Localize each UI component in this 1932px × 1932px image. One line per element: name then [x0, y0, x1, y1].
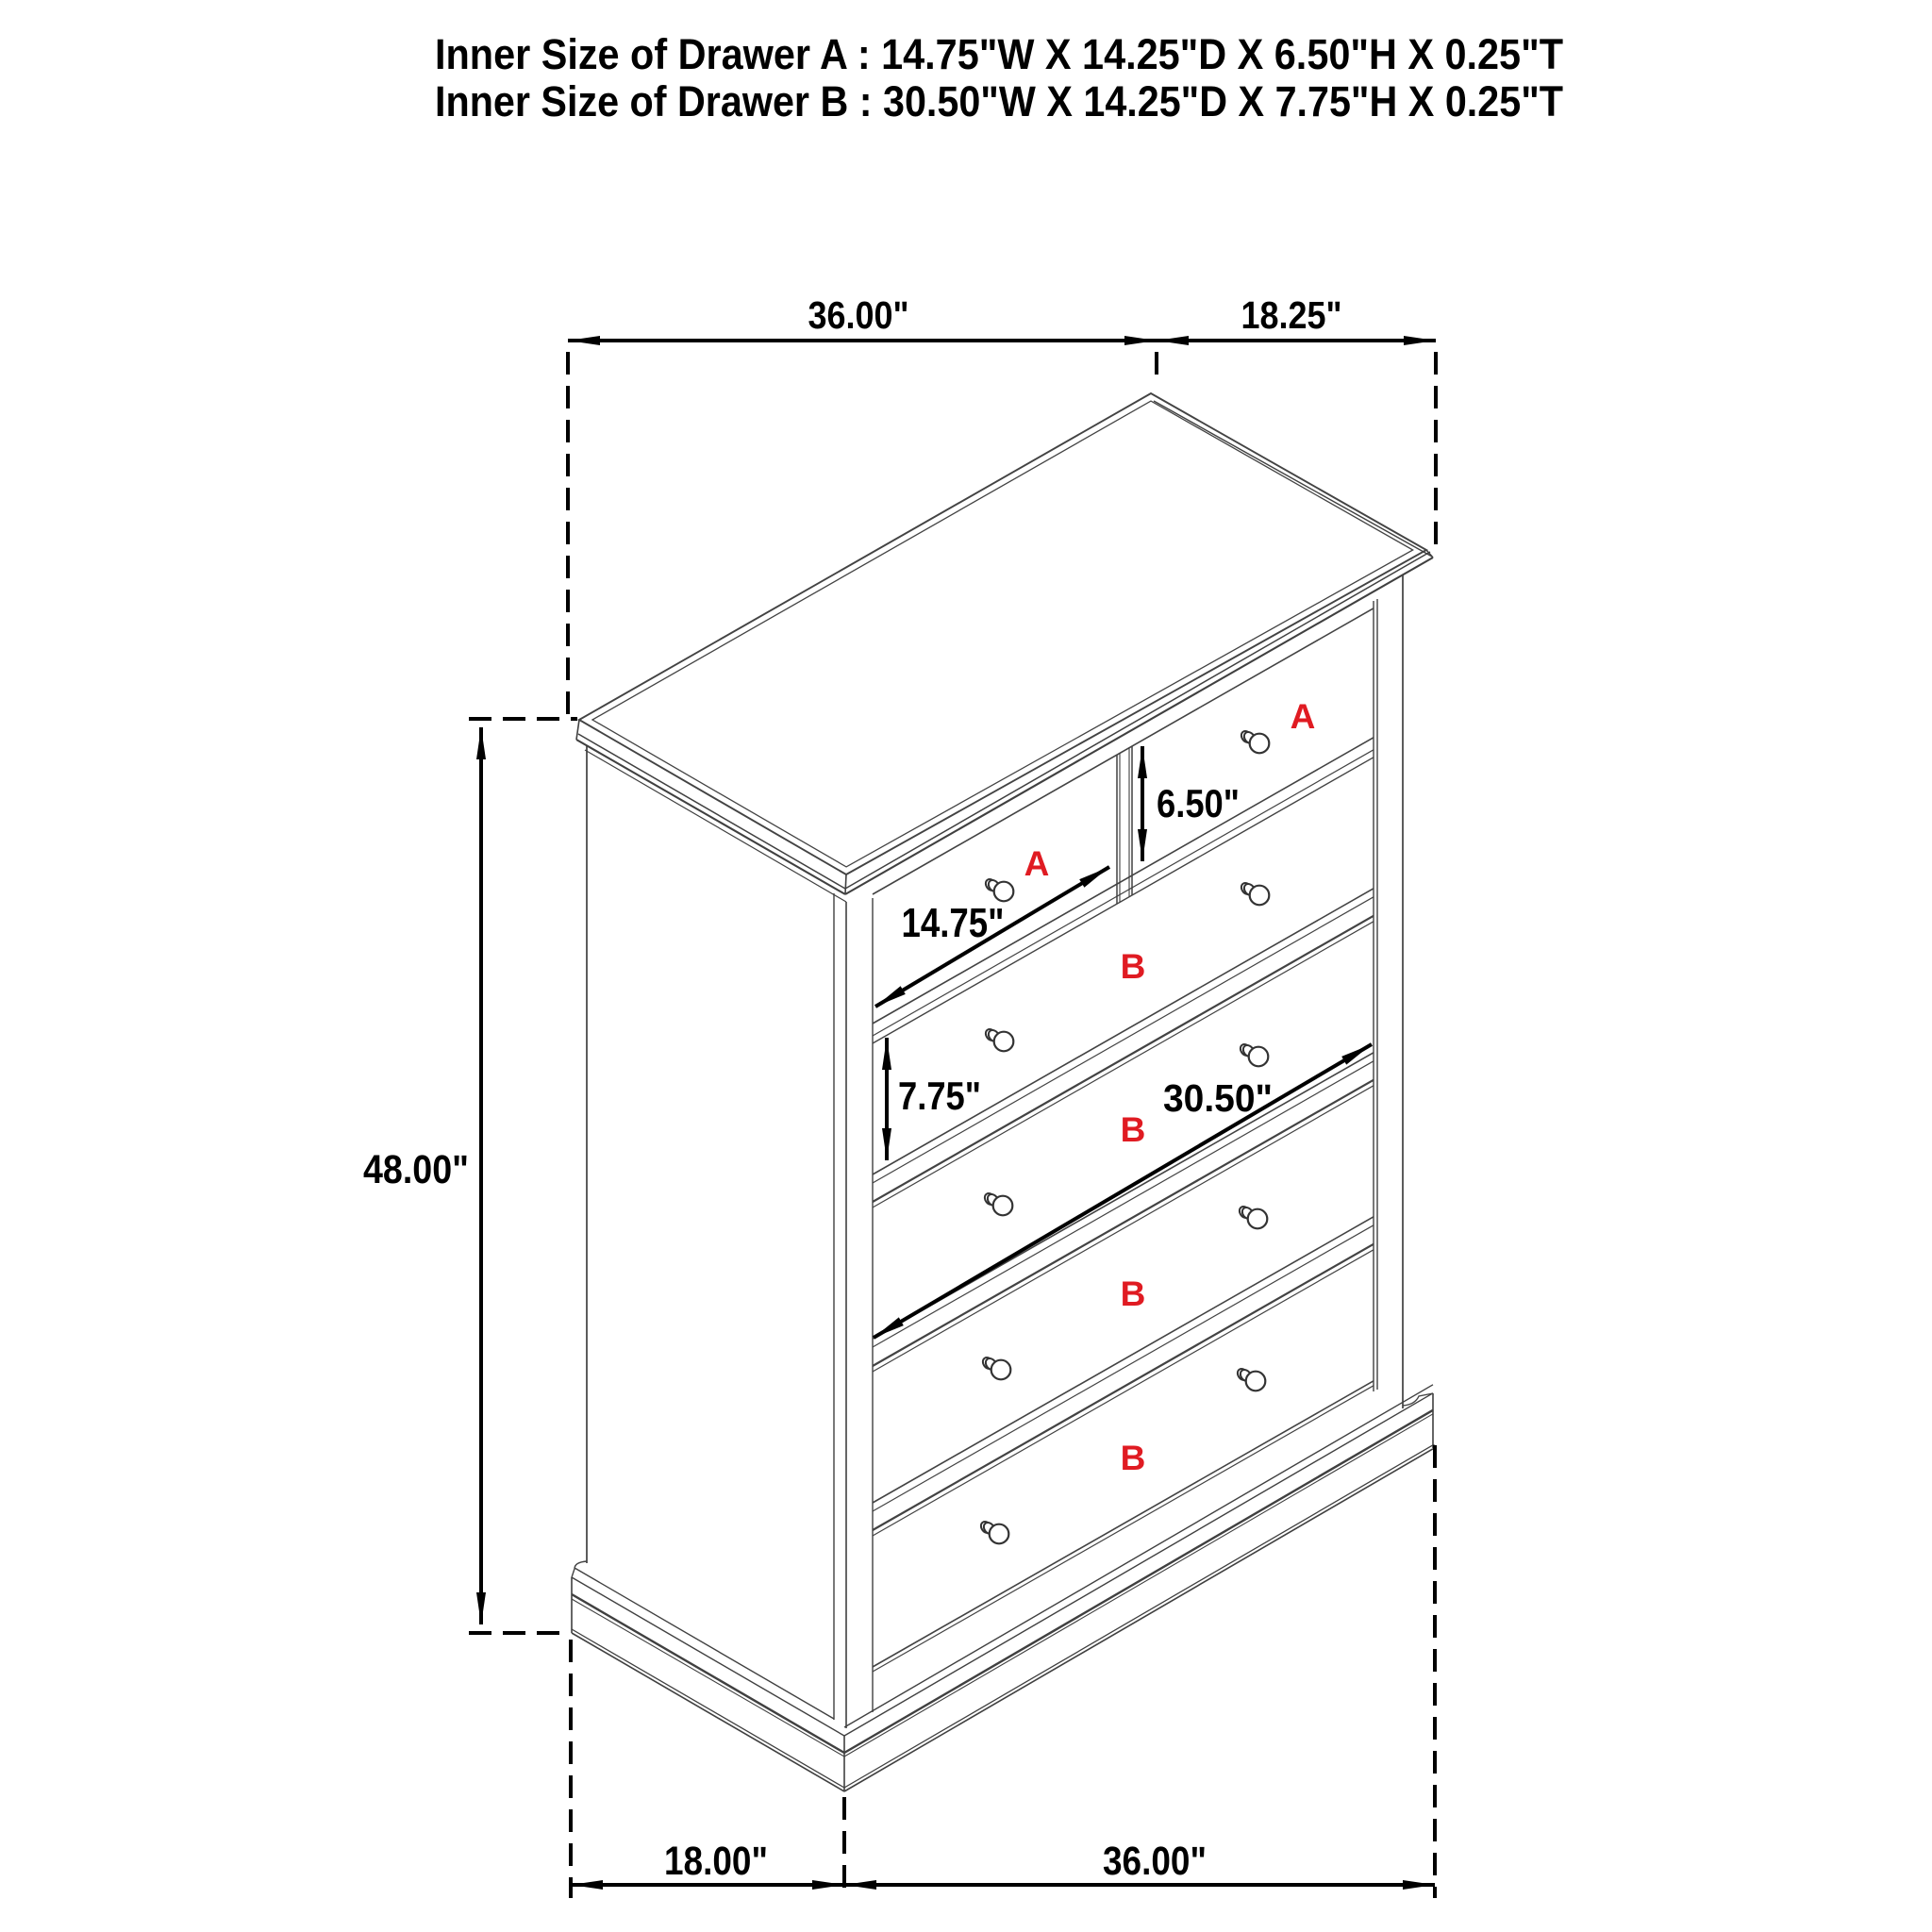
svg-text:7.75": 7.75": [898, 1074, 981, 1118]
svg-text:B: B: [1121, 947, 1146, 986]
svg-text:30.50": 30.50": [1163, 1076, 1273, 1120]
svg-text:B: B: [1121, 1439, 1146, 1477]
svg-text:18.25": 18.25": [1241, 293, 1342, 337]
svg-text:A: A: [1024, 844, 1050, 883]
svg-text:14.75": 14.75": [902, 900, 1005, 946]
svg-text:Inner Size of Drawer A : 14.75: Inner Size of Drawer A : 14.75"W X 14.25…: [435, 30, 1563, 78]
svg-text:A: A: [1291, 697, 1316, 736]
svg-text:Inner Size of Drawer B : 30.50: Inner Size of Drawer B : 30.50"W X 14.25…: [435, 77, 1563, 125]
svg-text:36.00": 36.00": [808, 293, 909, 337]
svg-text:18.00": 18.00": [664, 1839, 768, 1884]
svg-text:48.00": 48.00": [363, 1147, 469, 1192]
svg-text:6.50": 6.50": [1157, 781, 1240, 825]
svg-text:B: B: [1121, 1274, 1146, 1313]
svg-text:36.00": 36.00": [1103, 1839, 1207, 1884]
svg-text:B: B: [1121, 1110, 1146, 1149]
